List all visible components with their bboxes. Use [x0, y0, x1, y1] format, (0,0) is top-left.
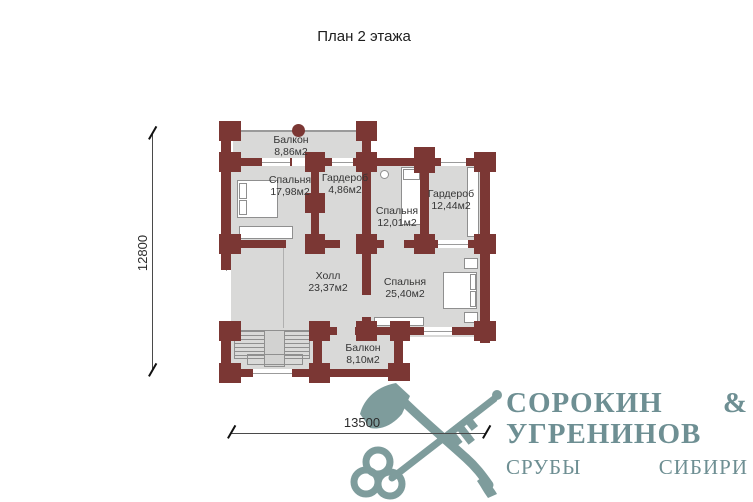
- window: [332, 158, 353, 166]
- log-end: [219, 152, 241, 172]
- dimension-line-horizontal: [231, 433, 486, 434]
- stairs-landing: [247, 354, 303, 365]
- log-end: [390, 321, 410, 341]
- logo-axe-and-key-icon: [350, 378, 522, 502]
- dimension-value-horizontal: 13500: [332, 415, 392, 429]
- window: [441, 158, 466, 166]
- dimension-line-vertical: [152, 133, 153, 371]
- log-end: [474, 321, 496, 341]
- door-opening: [286, 240, 306, 248]
- logo-line-3: СРУБЫ СИБИРИ: [506, 455, 748, 479]
- window: [438, 240, 468, 248]
- pillow-icon: [470, 274, 476, 290]
- window: [424, 327, 452, 335]
- room-label-balcony-bottom: Балкон8,10м2: [321, 342, 405, 366]
- floor-plan-page: План 2 этажа: [0, 0, 753, 502]
- pillow-icon: [239, 183, 247, 199]
- log-end: [219, 363, 241, 383]
- dimension-value-vertical: 12800: [135, 225, 149, 281]
- log-end: [309, 321, 330, 341]
- log-end: [414, 147, 435, 173]
- log-end: [219, 234, 241, 254]
- stair-opening-edge: [283, 248, 284, 328]
- room-label-hall: Холл23,37м2: [286, 270, 370, 294]
- closet-icon: [239, 226, 293, 239]
- log-end: [309, 363, 330, 383]
- log-end: [474, 152, 496, 172]
- log-end: [356, 152, 377, 172]
- page-title: План 2 этажа: [264, 28, 464, 45]
- log-end: [414, 234, 435, 254]
- logo-line-1: СОРОКИН &: [506, 388, 748, 419]
- nightstand-icon: [464, 258, 478, 269]
- door-opening: [337, 327, 355, 335]
- logo-wordmark: СОРОКИН & УГРЕНИНОВ СРУБЫ СИБИРИ: [506, 388, 748, 479]
- window: [221, 270, 231, 322]
- log-end: [219, 121, 241, 141]
- pillow-icon: [470, 291, 476, 307]
- room-label-wardrobe-1244: Гардероб12,44м2: [409, 188, 493, 212]
- door-opening: [384, 240, 404, 248]
- pillow-icon: [239, 200, 247, 215]
- room-label-bedroom-2540: Спальня25,40м2: [363, 276, 447, 300]
- log-end: [474, 234, 496, 254]
- room-label-balcony-top: Балкон8,86м2: [249, 134, 333, 158]
- room-label-wardrobe-486: Гардероб4,86м2: [303, 172, 387, 196]
- log-end: [356, 321, 377, 341]
- logo-line-2: УГРЕНИНОВ: [506, 419, 748, 450]
- log-end: [356, 121, 377, 141]
- log-end: [305, 234, 325, 254]
- window: [253, 369, 292, 377]
- log-end: [356, 234, 377, 254]
- log-end: [219, 321, 241, 341]
- window: [262, 158, 290, 166]
